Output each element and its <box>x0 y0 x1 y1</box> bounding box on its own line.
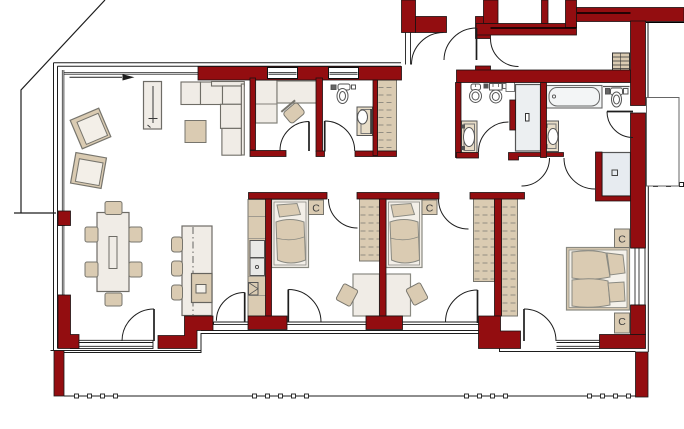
svg-text:C: C <box>312 203 320 215</box>
svg-text:C: C <box>426 203 434 215</box>
svg-text:C: C <box>618 316 626 328</box>
svg-text:C: C <box>618 234 626 246</box>
